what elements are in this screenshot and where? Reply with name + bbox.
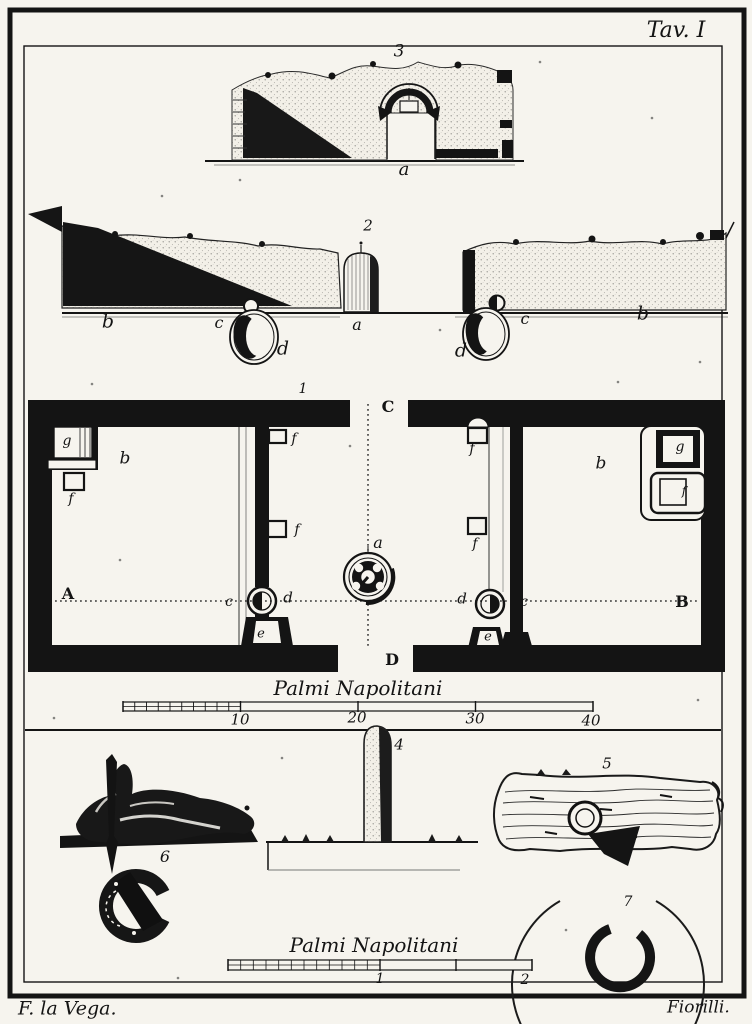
central-cippus <box>344 242 378 313</box>
signature-engraver: Fiorilli. <box>667 1000 730 1017</box>
signature-delineator: F. la Vega. <box>18 1000 117 1019</box>
vessel-plan-right <box>476 590 504 618</box>
scale-upper-tick-30: 30 <box>465 712 484 727</box>
scale-upper-tick-10: 10 <box>230 713 249 728</box>
scale-lower-tick-1: 1 <box>376 972 385 986</box>
plan-f-rpart-upper: f <box>469 442 474 456</box>
plan-f-niche-right: f <box>682 485 686 497</box>
elevation-lower-fig2 <box>28 206 734 364</box>
engraving-graphics <box>0 0 752 1024</box>
fig2-label-b-right: b <box>637 305 649 324</box>
scale-bar-lower <box>228 959 532 971</box>
plan-e-right: e <box>484 631 492 644</box>
elevation-upper-fig3 <box>205 61 524 165</box>
corner-niche-right <box>641 426 705 520</box>
scale-upper-tick-20: 20 <box>347 711 366 726</box>
fig2-label-c-left: c <box>215 315 224 331</box>
artifact-ring-7 <box>590 884 652 987</box>
plan-d-left: d <box>283 591 293 606</box>
fig2-label-d-right: d <box>455 342 467 361</box>
plan-room-b-right: b <box>596 456 607 473</box>
plan-d-right: d <box>457 592 467 607</box>
plate-title: Tav. I <box>647 20 706 42</box>
plan-c-right: c <box>520 595 528 609</box>
central-feature-a <box>344 546 392 602</box>
plan-number: 1 <box>299 382 308 396</box>
scale-lower-tick-2: 2 <box>521 973 530 987</box>
plan-g-right: g <box>676 440 685 454</box>
artifact-post-4 <box>266 726 478 870</box>
corner-niche-left <box>46 420 98 470</box>
plan-c-left: c <box>225 595 233 609</box>
plan-axis-c: C <box>382 399 395 415</box>
f-sockets <box>64 428 487 537</box>
plan-axis-b: B <box>675 594 689 610</box>
plan-label-a: a <box>373 535 383 551</box>
plan-e-left: e <box>257 628 265 641</box>
partition-wall-right <box>510 427 523 645</box>
artifact-5-number: 5 <box>602 757 612 772</box>
fig2-label-c-right: c <box>521 311 530 327</box>
plan-f-rpart-lower: f <box>472 537 477 551</box>
fig3-number: 3 <box>394 44 405 61</box>
engraved-plate: Tav. I 3 a 2 b c d a d c b 1 C D A B a b… <box>0 0 752 1024</box>
plan-axis-a: A <box>62 586 74 602</box>
partition-wall-left <box>255 427 269 587</box>
hanging-vessel-left <box>230 299 278 364</box>
artifact-7-number: 7 <box>624 895 633 909</box>
plan-f-room-left: f <box>68 492 73 506</box>
plan-axis-d: D <box>385 652 399 668</box>
scale-upper-title: Palmi Napolitani <box>274 678 443 698</box>
fig2-label-a: a <box>352 317 362 333</box>
artifact-c-fitting <box>106 872 163 936</box>
fig2-label-d-left: d <box>277 340 289 359</box>
artifacts <box>60 726 723 1024</box>
fig2-label-b-left: b <box>102 313 114 332</box>
plan-g-left: g <box>63 434 72 448</box>
artifact-4-number: 4 <box>394 738 404 753</box>
artifact-6-number: 6 <box>160 849 170 865</box>
fig2-number: 2 <box>363 219 373 234</box>
plan-room-b-left: b <box>120 451 131 468</box>
plan-f-lpart-upper: f <box>291 432 296 446</box>
scale-lower-title: Palmi Napolitani <box>290 935 459 955</box>
scale-upper-tick-40: 40 <box>581 714 600 729</box>
plan-f-lpart-lower: f <box>294 523 299 537</box>
fig3-label-a: a <box>399 161 410 179</box>
